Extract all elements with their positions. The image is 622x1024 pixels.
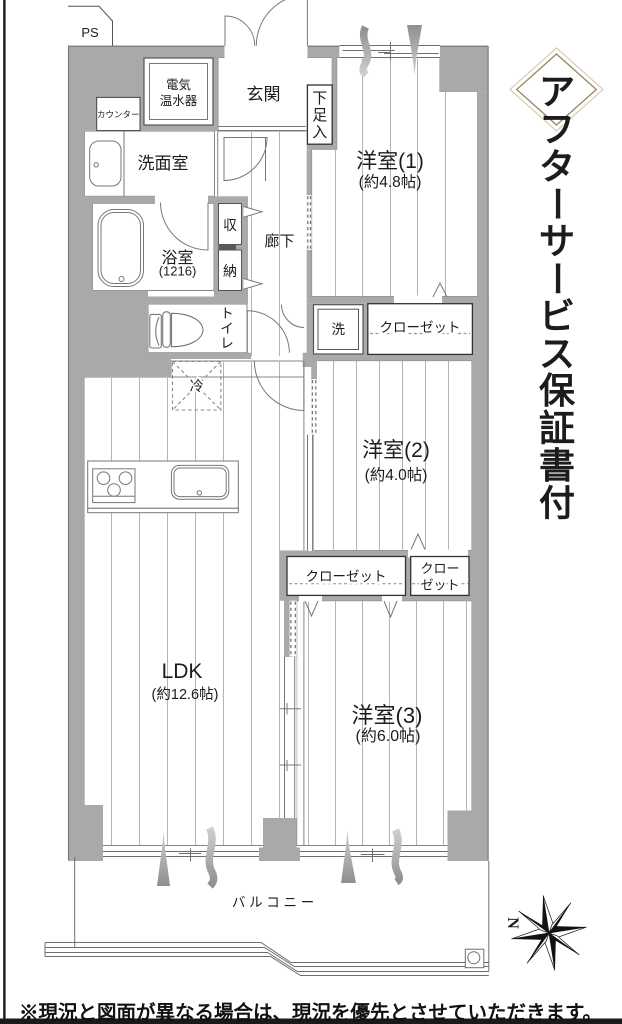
svg-text:ス: ス: [539, 333, 575, 374]
svg-text:書: 書: [539, 445, 575, 486]
svg-text:タ: タ: [539, 146, 575, 187]
svg-text:ア: ア: [539, 71, 575, 112]
svg-text:証: 証: [539, 408, 575, 449]
svg-text:サ: サ: [539, 221, 575, 262]
svg-text:ー: ー: [536, 260, 577, 296]
svg-text:ー: ー: [536, 186, 577, 222]
svg-text:付: 付: [539, 482, 575, 523]
svg-text:保: 保: [539, 370, 576, 411]
svg-text:フ: フ: [539, 108, 575, 149]
svg-text:ビ: ビ: [539, 295, 575, 336]
